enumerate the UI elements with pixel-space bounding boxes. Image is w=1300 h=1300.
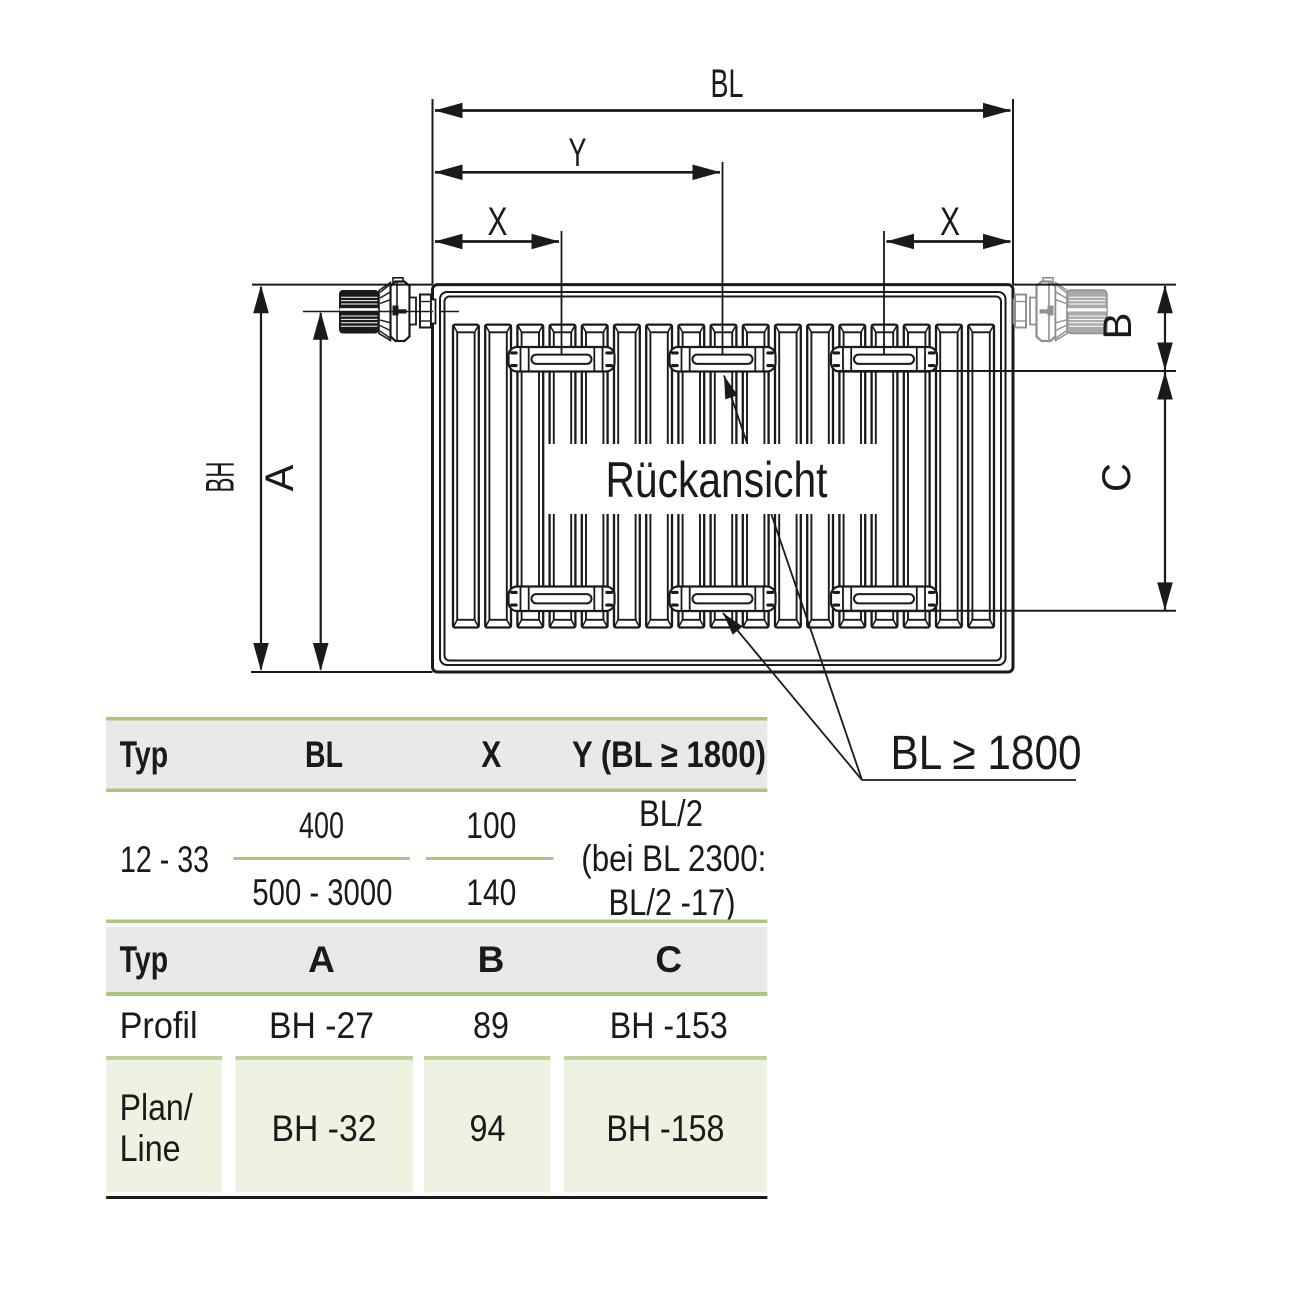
svg-text:BL/2 -17): BL/2 -17) [609, 882, 736, 923]
svg-text:Rückansicht: Rückansicht [606, 452, 828, 508]
svg-text:BL/2: BL/2 [639, 793, 703, 834]
svg-text:X: X [481, 734, 501, 775]
svg-text:Plan/: Plan/ [120, 1087, 194, 1128]
svg-text:X: X [488, 200, 508, 244]
svg-text:500 - 3000: 500 - 3000 [252, 872, 392, 913]
svg-text:94: 94 [470, 1108, 506, 1149]
svg-text:B: B [1096, 313, 1140, 340]
svg-text:BH -32: BH -32 [272, 1108, 377, 1149]
svg-text:BH -153: BH -153 [610, 1005, 728, 1046]
svg-text:BH: BH [199, 462, 243, 493]
svg-text:Y: Y [569, 131, 587, 175]
svg-text:400: 400 [299, 805, 344, 846]
svg-text:Typ: Typ [120, 734, 169, 775]
svg-text:BH -27: BH -27 [269, 1005, 374, 1046]
svg-text:A: A [258, 464, 302, 491]
svg-text:BL: BL [711, 62, 744, 106]
svg-text:X: X [940, 200, 960, 244]
svg-text:Line: Line [120, 1128, 181, 1169]
svg-text:Profil: Profil [120, 1005, 198, 1046]
svg-text:140: 140 [466, 872, 516, 913]
svg-text:(bei BL 2300:: (bei BL 2300: [581, 838, 766, 879]
svg-text:BL ≥ 1800: BL ≥ 1800 [891, 727, 1082, 780]
svg-text:100: 100 [466, 805, 516, 846]
svg-text:Y (BL ≥ 1800): Y (BL ≥ 1800) [572, 734, 766, 775]
svg-text:Typ: Typ [120, 939, 169, 980]
svg-text:C: C [1095, 463, 1139, 492]
svg-text:12 - 33: 12 - 33 [120, 839, 209, 880]
svg-text:B: B [478, 939, 505, 980]
svg-text:C: C [655, 939, 682, 980]
svg-text:BH -158: BH -158 [606, 1108, 724, 1149]
svg-text:A: A [308, 939, 335, 980]
svg-text:BL: BL [305, 734, 343, 775]
svg-text:89: 89 [473, 1005, 509, 1046]
